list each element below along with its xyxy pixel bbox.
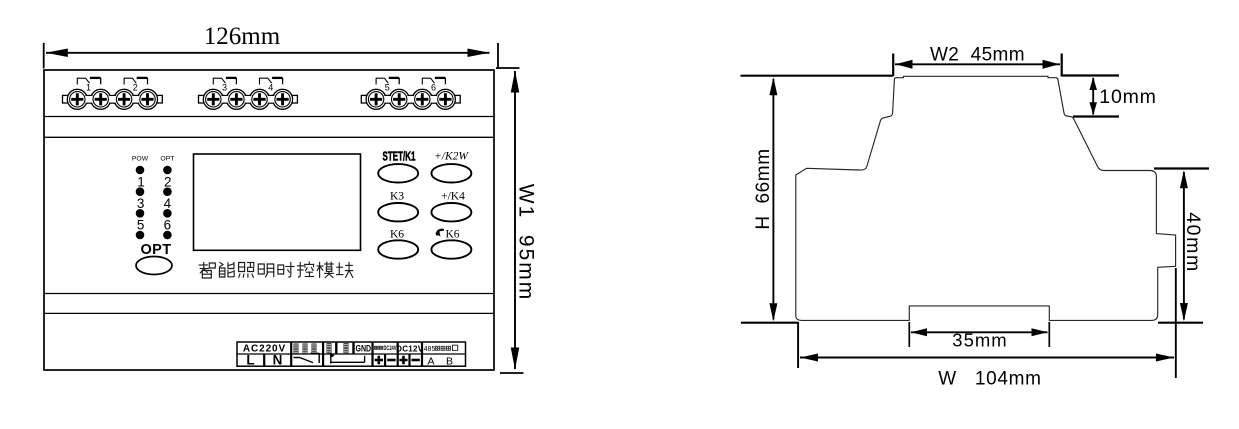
svg-text:K6: K6: [445, 228, 459, 240]
svg-text:N: N: [273, 352, 283, 367]
svg-text:3: 3: [137, 196, 145, 211]
svg-text:40mm: 40mm: [1182, 212, 1204, 273]
svg-text:6: 6: [164, 218, 172, 233]
svg-text:W2 45mm: W2 45mm: [930, 45, 1025, 66]
svg-text:STET/K1: STET/K1: [383, 151, 416, 164]
svg-text:W1 95mm: W1 95mm: [515, 184, 538, 302]
svg-text:5: 5: [137, 218, 145, 233]
svg-text:GND: GND: [356, 343, 372, 353]
svg-text:1: 1: [137, 175, 145, 190]
svg-text:5: 5: [385, 83, 390, 93]
svg-text:126mm: 126mm: [204, 23, 281, 50]
svg-text:H 66mm: H 66mm: [753, 148, 774, 229]
svg-text:4: 4: [164, 196, 172, 211]
svg-text:1: 1: [86, 83, 91, 93]
svg-text:DC12V: DC12V: [396, 344, 424, 353]
svg-text:485: 485: [424, 346, 436, 353]
svg-text:POW: POW: [132, 156, 149, 163]
svg-text:2: 2: [164, 175, 172, 190]
svg-text:10mm: 10mm: [1099, 86, 1156, 108]
svg-text:DC24V: DC24V: [384, 345, 397, 352]
svg-text:W 104mm: W 104mm: [938, 369, 1041, 390]
svg-text:K3: K3: [390, 191, 404, 203]
svg-text:35mm: 35mm: [952, 330, 1007, 351]
svg-text:OPT: OPT: [140, 242, 171, 258]
svg-text:L: L: [246, 352, 254, 367]
svg-text:+/K4: +/K4: [441, 191, 465, 203]
svg-text:B: B: [446, 356, 453, 368]
svg-text:+/K2W: +/K2W: [434, 151, 469, 163]
svg-text:K6: K6: [390, 228, 404, 240]
svg-text:2: 2: [133, 83, 138, 93]
svg-text:3: 3: [222, 83, 227, 93]
svg-text:6: 6: [431, 83, 436, 93]
svg-text:OPT: OPT: [160, 156, 174, 163]
svg-text:A: A: [427, 356, 434, 368]
svg-text:4: 4: [268, 83, 273, 93]
